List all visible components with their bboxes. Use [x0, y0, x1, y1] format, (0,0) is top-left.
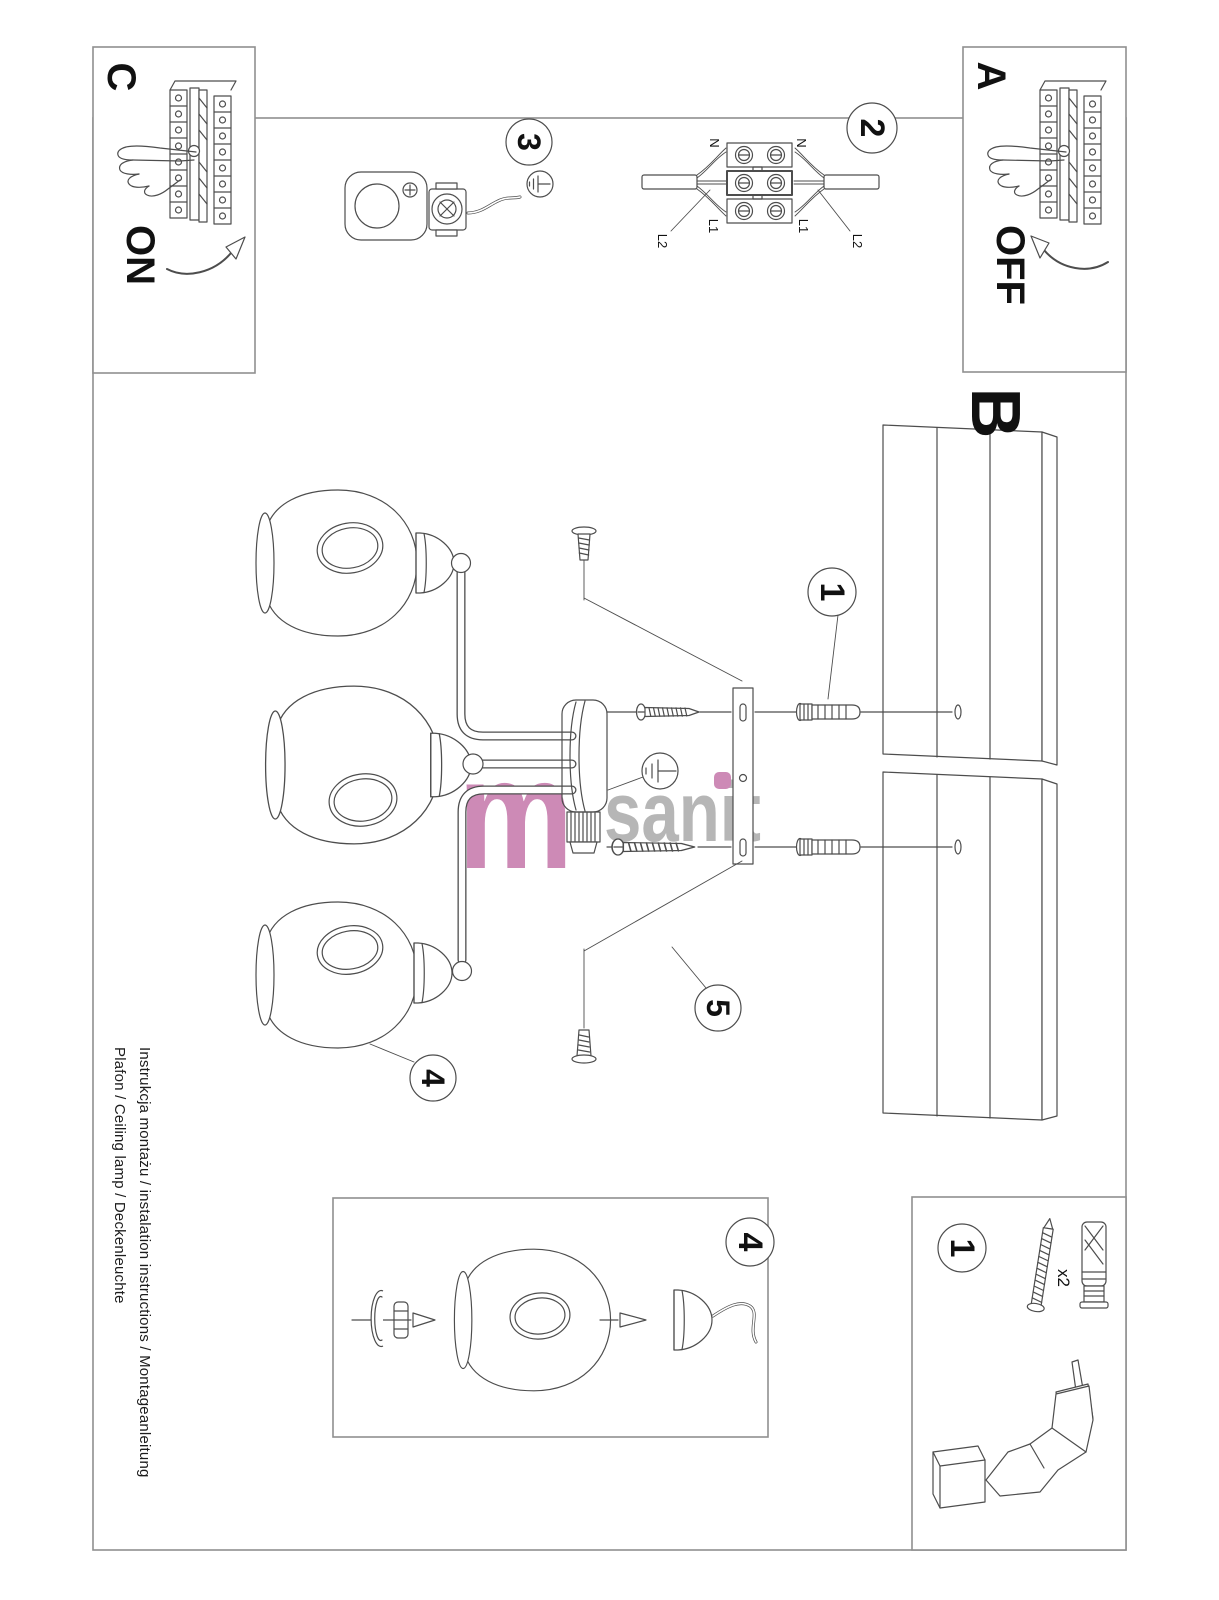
step-number-4b: 4	[730, 1222, 770, 1262]
canopy-screw-bottom	[572, 1030, 596, 1063]
ground-symbol-large-icon	[642, 753, 678, 789]
step-number-5: 5	[698, 988, 738, 1028]
lamp-shade-3	[256, 902, 472, 1048]
projection-lines	[584, 560, 742, 1028]
section-label-a: A	[969, 54, 1013, 98]
wall-plug-icon	[797, 704, 861, 721]
ground-symbol-small-icon	[527, 171, 553, 197]
step-number-3: 3	[509, 122, 549, 162]
wire-label-l1-right: L1	[795, 213, 813, 239]
canopy-screw-top	[572, 527, 596, 560]
wall-plug-icon	[797, 839, 861, 856]
section-label-b: B	[956, 373, 1036, 453]
diagram-artwork	[0, 0, 1219, 1600]
ceiling-panels-illustration	[883, 425, 1057, 1120]
wire-label-n-right: N	[793, 130, 811, 156]
footer-title-line2: Plafon / Ceiling lamp / Deckenleuchte	[111, 1047, 128, 1304]
instruction-sheet: m sanit	[0, 0, 1219, 1600]
step-number-1: 1	[812, 572, 852, 612]
lamp-shade-1	[256, 490, 471, 636]
wire-label-l2-left: L2	[654, 228, 672, 254]
wall-plug-icon	[1080, 1222, 1108, 1308]
ball-joint-icon	[463, 754, 483, 774]
quantity-label: x2	[1054, 1263, 1074, 1293]
canopy-illustration	[562, 700, 678, 853]
wire-label-l1-left: L1	[705, 213, 723, 239]
ball-joint-icon	[453, 962, 472, 981]
wire-label-n-left: N	[706, 130, 724, 156]
section-label-c: C	[99, 55, 143, 99]
switch-off-label: OFF	[988, 220, 1032, 310]
screw-icon	[612, 839, 695, 855]
lamp-shade-2	[266, 686, 483, 844]
step-number-2: 2	[852, 108, 892, 148]
step-number-1b: 1	[942, 1228, 982, 1268]
screw-icon	[637, 704, 700, 720]
footer-title-line1: Instrukcja montażu / instalation instruc…	[136, 1047, 153, 1478]
ball-joint-icon	[452, 554, 471, 573]
switch-on-label: ON	[118, 215, 162, 295]
step-number-4: 4	[413, 1058, 453, 1098]
wire-label-l2-right: L2	[849, 228, 867, 254]
